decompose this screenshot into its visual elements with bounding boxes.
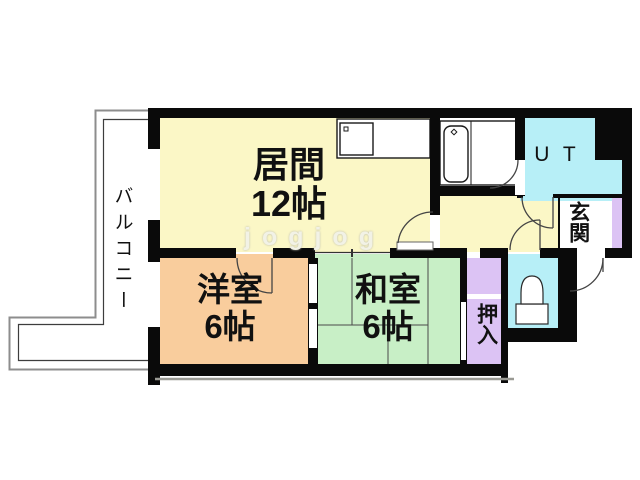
toilet-tank xyxy=(516,304,548,324)
living-window xyxy=(148,149,160,220)
oshiire-label: 押入 xyxy=(474,303,497,345)
living-room-label: 居間 12帖 xyxy=(222,145,356,223)
floorplan-canvas: 居間 12帖 洋室 6帖 和室 6帖 U T 玄関 押入 バルコニー jogjo… xyxy=(0,0,640,480)
sliding-door-gap-1 xyxy=(309,264,317,303)
japanese-room-label: 和室 6帖 xyxy=(320,271,456,345)
utility-room-label: U T xyxy=(524,144,590,167)
living-room-name: 居間 xyxy=(222,145,356,184)
japanese-room-size: 6帖 xyxy=(320,308,456,345)
wall-bath-bottom xyxy=(430,186,522,196)
bath-unit xyxy=(440,121,516,185)
wall-closet-toilet xyxy=(501,258,508,383)
bathtub-icon xyxy=(444,126,468,182)
living-hall-door-leaf xyxy=(397,242,433,250)
faucet-icon xyxy=(344,127,348,131)
sliding-door-gap-2 xyxy=(309,309,317,348)
entrance-label: 玄関 xyxy=(566,201,589,243)
balcony-label: バルコニー xyxy=(111,186,132,336)
western-room-size: 6帖 xyxy=(162,308,298,345)
wall-right xyxy=(622,108,632,258)
western-room-label: 洋室 6帖 xyxy=(162,271,298,345)
storage-box-floor xyxy=(467,258,501,294)
site-watermark: jogjog xyxy=(244,224,385,251)
wall-top xyxy=(148,108,632,118)
wall-toilet-right xyxy=(558,248,577,342)
western-room-name: 洋室 xyxy=(162,271,298,308)
entrance-side-strip xyxy=(612,198,622,252)
wall-ut-genkan-line xyxy=(553,194,622,198)
genkan-step-line xyxy=(558,198,560,252)
toilet-bowl xyxy=(521,276,543,304)
oshiire-door-gap xyxy=(461,302,466,360)
western-window xyxy=(148,262,160,327)
living-room-size: 12帖 xyxy=(222,184,356,223)
wall-bottom xyxy=(148,364,508,376)
wall-toilet-bottom xyxy=(501,328,577,342)
closet-divider-gap xyxy=(467,294,501,299)
japanese-room-name: 和室 xyxy=(320,271,456,308)
wall-living-bath xyxy=(430,108,440,215)
